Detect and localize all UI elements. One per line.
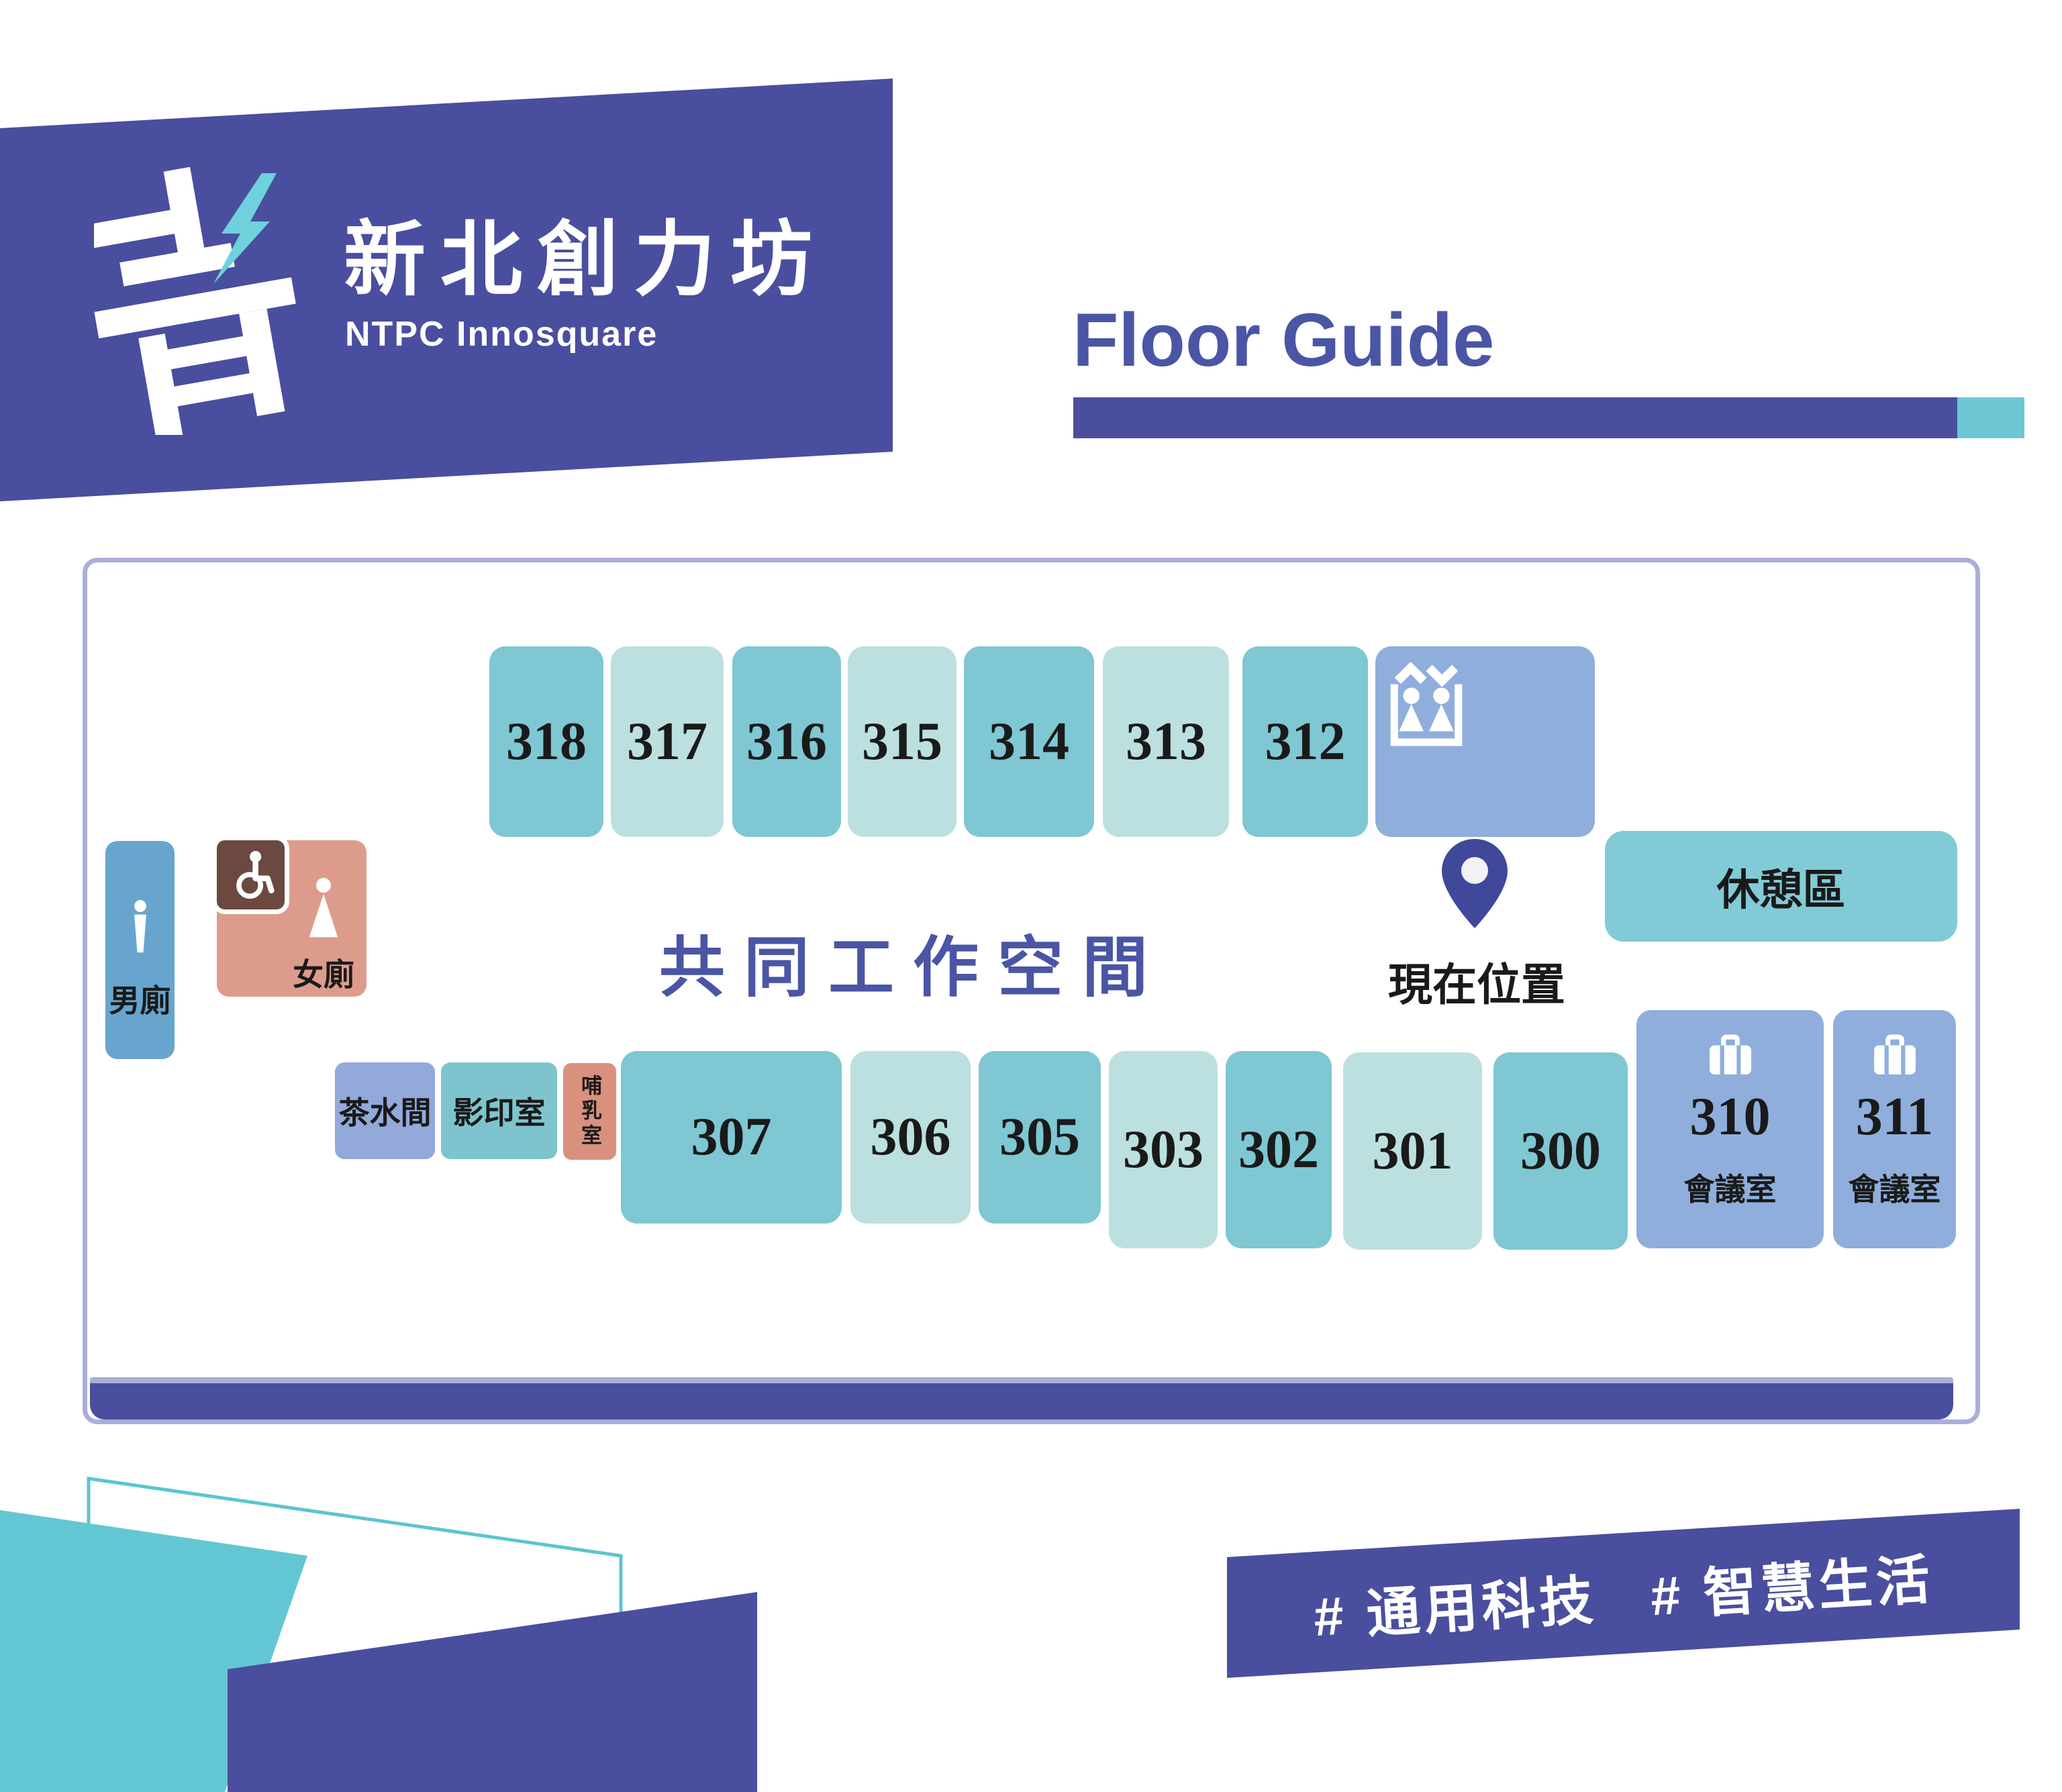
- room-number: 306: [871, 1107, 951, 1168]
- female-person-icon: [303, 878, 344, 940]
- accessible-toilet-block: [217, 840, 285, 909]
- room-number: 316: [746, 711, 827, 773]
- room-312: 312: [1242, 646, 1368, 837]
- tea-room-block: 茶水間: [335, 1062, 435, 1159]
- nursing-room-label: 哺乳室: [575, 1075, 605, 1149]
- room-number: 317: [627, 711, 707, 773]
- room-number: 302: [1238, 1119, 1319, 1181]
- current-location-pin-icon: [1441, 839, 1508, 928]
- room-317: 317: [611, 646, 724, 837]
- room-300: 300: [1493, 1052, 1628, 1250]
- room-306: 306: [850, 1051, 971, 1224]
- room-number: 318: [506, 711, 587, 773]
- hashtag-2: # 智慧生活: [1648, 1536, 1936, 1631]
- brand-subtitle: NTPC Innosquare: [345, 314, 658, 354]
- brand-logo-icon: [94, 166, 315, 435]
- room-307: 307: [621, 1051, 842, 1224]
- hashtag-1: # 通用科技: [1311, 1556, 1599, 1652]
- meeting-room-label: 會議室: [1849, 1165, 1941, 1209]
- floor-guide-bar-accent: [1957, 397, 2024, 438]
- elevator-block: [1375, 646, 1595, 837]
- room-number: 305: [999, 1107, 1080, 1168]
- male-toilet-label: 男廁: [109, 977, 171, 1021]
- copy-room-block: 影印室: [441, 1062, 557, 1159]
- floor-map: 318 317 316 315 314 313 312 休憩區 現在位置: [83, 558, 1980, 1424]
- copy-room-label: 影印室: [453, 1089, 546, 1133]
- current-location-label: 現在位置: [1363, 949, 1591, 1013]
- room-315: 315: [848, 646, 956, 837]
- page-title: Floor Guide: [1073, 297, 1494, 383]
- lightning-icon: [213, 173, 277, 284]
- room-number: 315: [862, 711, 942, 773]
- map-bottom-bar: [90, 1377, 1953, 1420]
- elevator-icon: [1389, 662, 1464, 748]
- room-301: 301: [1343, 1052, 1482, 1250]
- room-313: 313: [1103, 646, 1229, 837]
- rest-area-block: 休憩區: [1605, 831, 1957, 942]
- wheelchair-icon: [226, 850, 277, 901]
- meeting-room-310: 310 會議室: [1636, 1010, 1824, 1248]
- room-316: 316: [732, 646, 841, 837]
- room-302: 302: [1226, 1051, 1332, 1248]
- meeting-room-311: 311 會議室: [1833, 1010, 1956, 1248]
- room-number: 310: [1690, 1087, 1771, 1148]
- nursing-room-block: 哺乳室: [563, 1063, 616, 1160]
- room-303: 303: [1109, 1051, 1218, 1248]
- coworking-space-label: 共同工作空間: [659, 914, 1167, 1009]
- female-toilet-label: 女廁: [293, 950, 354, 995]
- brand-title: 新北創力坊: [344, 193, 827, 312]
- room-number: 314: [989, 711, 1069, 773]
- room-number: 303: [1123, 1119, 1204, 1181]
- floor-guide-poster: 新北創力坊 NTPC Innosquare Floor Guide 318 31…: [0, 0, 2062, 1792]
- room-314: 314: [964, 646, 1094, 837]
- room-number: 300: [1520, 1121, 1601, 1182]
- room-305: 305: [979, 1051, 1101, 1224]
- male-toilet-block: 男廁: [105, 841, 175, 1059]
- briefcase-icon: [1708, 1034, 1753, 1077]
- room-number: 313: [1126, 711, 1206, 773]
- male-person-icon: [126, 900, 154, 955]
- room-number: 307: [691, 1107, 772, 1168]
- room-318: 318: [489, 646, 603, 837]
- briefcase-icon: [1873, 1034, 1917, 1077]
- room-number: 301: [1373, 1121, 1453, 1182]
- floor-guide-bar: [1073, 397, 1957, 438]
- room-number: 312: [1265, 711, 1346, 773]
- meeting-room-label: 會議室: [1684, 1165, 1777, 1209]
- room-number: 311: [1856, 1087, 1934, 1148]
- tea-room-label: 茶水間: [339, 1089, 432, 1133]
